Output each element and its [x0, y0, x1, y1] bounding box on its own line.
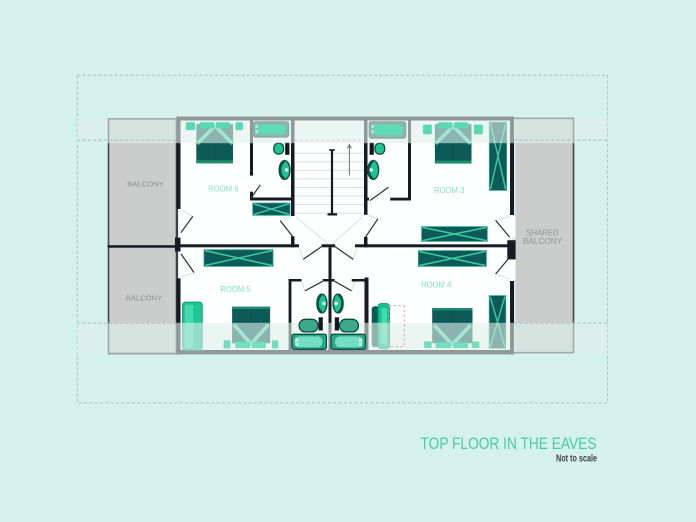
- svg-text:TOP FLOOR IN THE EAVES: TOP FLOOR IN THE EAVES: [421, 434, 597, 453]
- svg-text:Not to scale: Not to scale: [556, 454, 597, 465]
- svg-text:BALCONY: BALCONY: [127, 182, 164, 189]
- svg-text:BALCONY: BALCONY: [126, 295, 163, 302]
- svg-text:BALCONY: BALCONY: [523, 236, 563, 246]
- svg-text:ROOM 3: ROOM 3: [434, 185, 465, 195]
- svg-text:ROOM 4: ROOM 4: [421, 280, 452, 290]
- svg-text:ROOM 5: ROOM 5: [220, 284, 251, 294]
- svg-text:ROOM 6: ROOM 6: [208, 184, 239, 194]
